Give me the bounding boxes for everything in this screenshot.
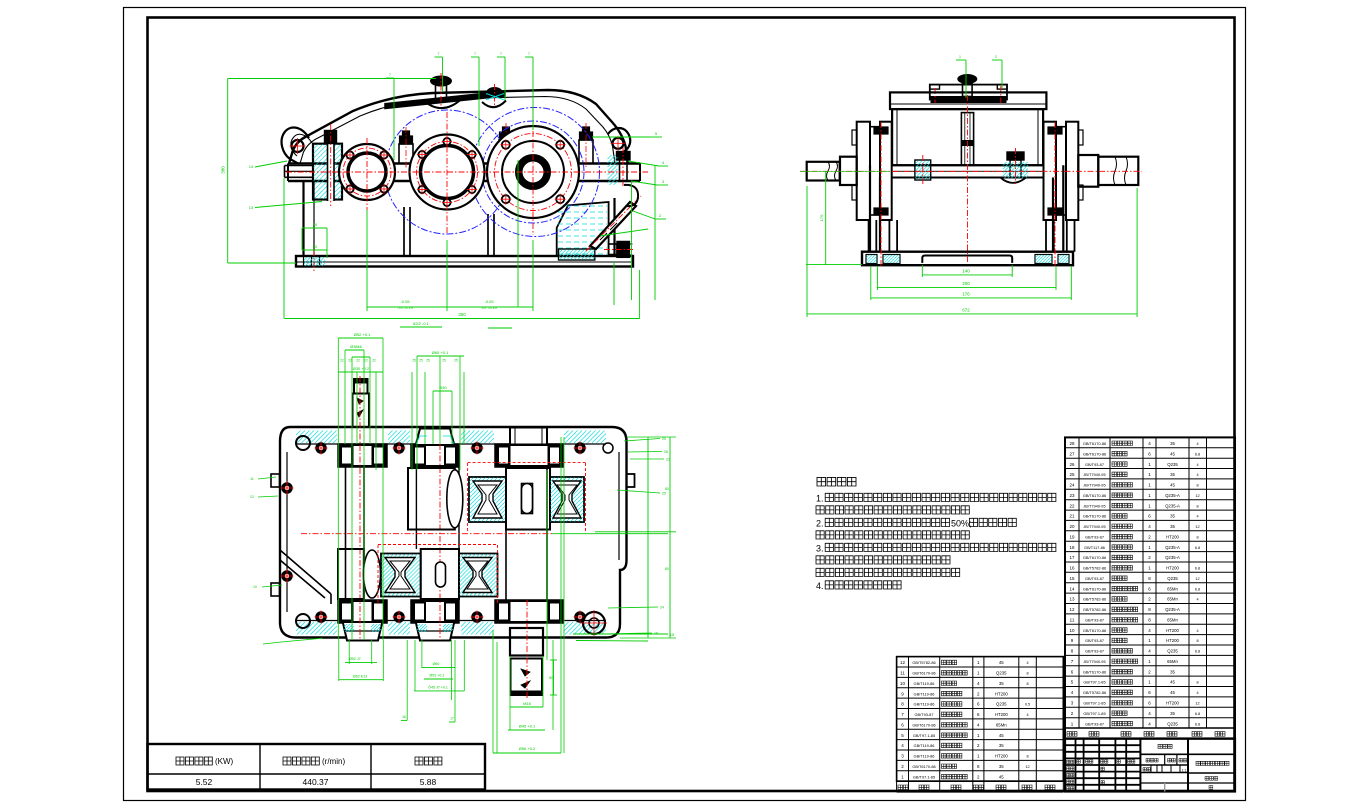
svg-text:HT200: HT200 (995, 754, 1009, 759)
svg-text:45: 45 (1170, 451, 1175, 456)
svg-text:65Mn: 65Mn (1167, 659, 1178, 664)
svg-text:GB/T6170-86: GB/T6170-86 (1083, 493, 1106, 498)
svg-text:HT200: HT200 (1166, 534, 1180, 539)
svg-text:Ø45 +0.1: Ø45 +0.1 (519, 724, 536, 729)
svg-text:4: 4 (1196, 691, 1198, 695)
svg-text:Ø52 +0.1: Ø52 +0.1 (430, 674, 445, 678)
svg-text:Ø30 +0.2: Ø30 +0.2 (353, 366, 370, 371)
svg-text:22: 22 (356, 359, 360, 363)
svg-text:10: 10 (1069, 628, 1075, 633)
svg-text:8: 8 (1196, 504, 1198, 508)
svg-text:25: 25 (442, 359, 446, 363)
svg-text:GB/T6170-86: GB/T6170-86 (1083, 628, 1106, 633)
svg-text:Ø52 J7: Ø52 J7 (349, 657, 361, 661)
svg-text:JB/T7940-95: JB/T7940-95 (1083, 472, 1105, 477)
svg-text:GB/T5782-86: GB/T5782-86 (912, 660, 935, 665)
svg-text:HT200: HT200 (1166, 628, 1180, 633)
svg-text:17: 17 (1069, 555, 1075, 560)
svg-text:11: 11 (250, 477, 254, 481)
svg-text:80: 80 (665, 487, 669, 491)
svg-text:11: 11 (1070, 617, 1075, 622)
svg-text:1:1: 1:1 (1182, 768, 1187, 772)
svg-text:8: 8 (1196, 535, 1198, 539)
svg-text:Ø40: Ø40 (439, 385, 447, 390)
svg-text:5.88: 5.88 (420, 777, 437, 787)
svg-text:Q235: Q235 (1167, 462, 1178, 467)
svg-text:22: 22 (340, 359, 344, 363)
svg-text:20: 20 (662, 437, 666, 441)
svg-text:12: 12 (1069, 607, 1075, 612)
svg-text:4: 4 (1196, 515, 1198, 519)
svg-text:23: 23 (1069, 493, 1075, 498)
svg-text:HT200: HT200 (995, 691, 1009, 696)
svg-text:7: 7 (389, 73, 391, 77)
svg-text:JB/T7940-95: JB/T7940-95 (1083, 483, 1105, 488)
svg-text:25: 25 (662, 492, 666, 496)
svg-text:12: 12 (1195, 577, 1199, 581)
svg-text:JB/T7940-95: JB/T7940-95 (1083, 524, 1105, 529)
svg-text:GB/T117-86: GB/T117-86 (1084, 545, 1105, 550)
svg-text:65Mn: 65Mn (1167, 586, 1178, 591)
svg-text:Q235: Q235 (996, 671, 1007, 676)
svg-text:26: 26 (1069, 462, 1075, 467)
svg-text:GB/T93-87: GB/T93-87 (1085, 721, 1104, 726)
svg-text:-0.05: -0.05 (400, 299, 410, 304)
svg-text:12: 12 (250, 495, 254, 499)
svg-text:GB/T97.1-85: GB/T97.1-85 (1083, 711, 1105, 716)
svg-text:JB/T7940-95: JB/T7940-95 (1083, 659, 1105, 664)
svg-text:6.8: 6.8 (1195, 452, 1200, 456)
svg-text:GB/T119-86: GB/T119-86 (914, 702, 935, 707)
svg-text:7: 7 (474, 52, 476, 56)
svg-text:-70 -0.10: -70 -0.10 (397, 305, 414, 310)
svg-text:GB/T5782-86: GB/T5782-86 (1083, 597, 1106, 602)
svg-text:GB/T93-87: GB/T93-87 (1085, 617, 1104, 622)
svg-text:GB/T6170-86: GB/T6170-86 (1083, 669, 1106, 674)
svg-text:45: 45 (1170, 680, 1175, 685)
svg-text:GB/T93-87: GB/T93-87 (1085, 534, 1104, 539)
svg-text:Ø60: Ø60 (433, 662, 440, 666)
svg-text:25: 25 (412, 359, 416, 363)
svg-text:35: 35 (999, 764, 1004, 769)
svg-text:25: 25 (1069, 472, 1075, 477)
svg-text:6.8: 6.8 (1195, 650, 1200, 654)
svg-text:GB/T119-86: GB/T119-86 (914, 691, 935, 696)
svg-text:7: 7 (528, 52, 530, 56)
svg-text:13: 13 (1069, 597, 1075, 602)
svg-text:6.8: 6.8 (1195, 722, 1200, 726)
svg-text:Q235: Q235 (1167, 721, 1178, 726)
svg-text:45: 45 (1170, 690, 1175, 695)
svg-text:25: 25 (419, 359, 423, 363)
svg-text:25: 25 (426, 359, 430, 363)
svg-text:4: 4 (1196, 629, 1198, 633)
svg-text:20: 20 (1069, 524, 1075, 529)
svg-text:672: 672 (962, 308, 970, 313)
svg-text:35: 35 (999, 743, 1004, 748)
svg-text:3.: 3. (816, 544, 824, 554)
svg-text:7: 7 (438, 52, 440, 56)
svg-text:Q235-A: Q235-A (1165, 503, 1180, 508)
svg-text:200: 200 (962, 281, 970, 286)
svg-text:50%;: 50%; (951, 519, 972, 529)
svg-text:GB/T5782-86: GB/T5782-86 (1083, 566, 1106, 571)
svg-text:GB/T5782-86: GB/T5782-86 (1083, 607, 1106, 612)
svg-text:Ø56 +0.2: Ø56 +0.2 (519, 746, 536, 751)
svg-text:GB/T93-87: GB/T93-87 (1085, 462, 1104, 467)
svg-text:GB/T6170-86: GB/T6170-86 (1083, 451, 1106, 456)
svg-text:30: 30 (313, 222, 318, 227)
svg-text:35: 35 (1170, 441, 1175, 446)
svg-text:27: 27 (1069, 451, 1075, 456)
svg-text:-67 -0.10: -67 -0.10 (481, 305, 498, 310)
svg-text:JB/T7940-95: JB/T7940-95 (1083, 503, 1105, 508)
svg-text:45: 45 (999, 660, 1004, 665)
svg-text:6.8: 6.8 (1195, 587, 1200, 591)
svg-text:GB/T97.1-85: GB/T97.1-85 (1083, 701, 1105, 706)
svg-text:12: 12 (1195, 702, 1199, 706)
svg-text:24: 24 (660, 606, 664, 610)
svg-text:Q235: Q235 (1167, 649, 1178, 654)
svg-text:GB/T6170-86: GB/T6170-86 (1083, 441, 1106, 446)
svg-text:5.52: 5.52 (196, 777, 213, 787)
svg-text:(KW): (KW) (215, 757, 234, 766)
svg-text:8: 8 (1196, 681, 1198, 685)
svg-text:13: 13 (249, 205, 254, 210)
svg-text:45: 45 (999, 733, 1004, 738)
svg-text:6.8: 6.8 (1195, 567, 1200, 571)
svg-text:10: 10 (253, 585, 257, 589)
svg-text:4: 4 (1196, 598, 1198, 602)
svg-text:Ø62 K13: Ø62 K13 (353, 674, 367, 678)
svg-text:HT200: HT200 (1166, 638, 1180, 643)
svg-text:GB/T97.1-85: GB/T97.1-85 (913, 774, 935, 779)
svg-text:HT200: HT200 (995, 712, 1009, 717)
svg-text:GB/T97.1-85: GB/T97.1-85 (1083, 680, 1105, 685)
svg-text:140: 140 (962, 269, 970, 274)
svg-text:35: 35 (1170, 472, 1175, 477)
svg-text:7: 7 (500, 52, 502, 56)
svg-text:22: 22 (1069, 503, 1075, 508)
svg-text:45: 45 (1170, 483, 1175, 488)
svg-text:20: 20 (313, 244, 318, 249)
svg-text:2: 2 (995, 55, 997, 59)
svg-text:4: 4 (1196, 473, 1198, 477)
svg-text:15: 15 (1069, 576, 1075, 581)
svg-text:GB/T93-87: GB/T93-87 (1085, 649, 1104, 654)
svg-text:22: 22 (348, 359, 352, 363)
svg-text:Ø38k6: Ø38k6 (350, 344, 363, 349)
svg-text:GB/T119-86: GB/T119-86 (914, 754, 935, 759)
svg-text:8: 8 (1026, 682, 1028, 686)
svg-text:19: 19 (1069, 534, 1075, 539)
svg-text:8: 8 (1026, 755, 1028, 759)
svg-text:16: 16 (402, 715, 406, 719)
svg-text:GB/T6170-86: GB/T6170-86 (912, 671, 935, 676)
svg-text:GB/T93-87: GB/T93-87 (1085, 638, 1104, 643)
svg-text:8: 8 (1026, 672, 1028, 676)
svg-text:Ø60 +0.1: Ø60 +0.1 (432, 350, 449, 355)
svg-text:16: 16 (1069, 566, 1075, 571)
svg-text:35: 35 (1170, 669, 1175, 674)
svg-text:Q235: Q235 (1167, 576, 1178, 581)
svg-text:15: 15 (670, 632, 675, 637)
svg-text:GB/T93-87: GB/T93-87 (914, 712, 933, 717)
svg-text:-0.05: -0.05 (484, 299, 494, 304)
svg-text:65Mn: 65Mn (996, 722, 1007, 727)
svg-text:35: 35 (1170, 711, 1175, 716)
svg-text:35: 35 (1170, 524, 1175, 529)
svg-text:GB/T6170-86: GB/T6170-86 (1083, 555, 1106, 560)
svg-text:Q235-A: Q235-A (1165, 493, 1180, 498)
svg-text:10: 10 (900, 681, 906, 686)
svg-text:GB/T5782-86: GB/T5782-86 (1083, 690, 1106, 695)
svg-text:28: 28 (1069, 441, 1075, 446)
svg-text:12: 12 (1195, 525, 1199, 529)
svg-text:Q235-A: Q235-A (1165, 545, 1180, 550)
svg-text:GB/T6170-86: GB/T6170-86 (1083, 586, 1106, 591)
svg-text:17: 17 (450, 717, 454, 721)
svg-text:6.8: 6.8 (1195, 712, 1200, 716)
svg-text:GB/T6170-86: GB/T6170-86 (1083, 514, 1106, 519)
svg-text:12: 12 (1195, 494, 1199, 498)
svg-text:11: 11 (900, 671, 905, 676)
svg-text:350: 350 (458, 312, 466, 317)
svg-text:21: 21 (1069, 514, 1075, 519)
svg-text:35: 35 (1170, 514, 1175, 519)
svg-text:1.: 1. (816, 494, 824, 504)
svg-text:GB/T6170-86: GB/T6170-86 (912, 722, 935, 727)
svg-text:22: 22 (372, 359, 376, 363)
svg-text:25: 25 (454, 359, 458, 363)
svg-text:14: 14 (1069, 586, 1075, 591)
svg-text:Q235-A: Q235-A (1165, 607, 1180, 612)
svg-text:14: 14 (249, 164, 254, 169)
svg-text:26: 26 (664, 450, 668, 454)
svg-text:62/2 -0.1: 62/2 -0.1 (413, 321, 430, 326)
svg-text:18: 18 (1069, 545, 1075, 550)
svg-text:4.: 4. (816, 581, 824, 591)
svg-text:440.37: 440.37 (303, 777, 329, 787)
svg-text:GB/T6170-86: GB/T6170-86 (912, 764, 935, 769)
svg-text:8: 8 (1196, 639, 1198, 643)
svg-text:22: 22 (666, 458, 670, 462)
svg-text:Q235: Q235 (996, 702, 1007, 707)
svg-text:170: 170 (819, 214, 824, 221)
svg-text:65Mn: 65Mn (1167, 597, 1178, 602)
svg-text:45: 45 (999, 774, 1004, 779)
svg-text:22: 22 (364, 359, 368, 363)
svg-text:Ô45 J7 +0.1: Ô45 J7 +0.1 (428, 685, 448, 690)
svg-text:(r/min): (r/min) (322, 757, 345, 766)
svg-text:Q235-A: Q235-A (1165, 555, 1180, 560)
svg-text:176: 176 (962, 292, 970, 297)
svg-text:4: 4 (1196, 442, 1198, 446)
svg-text:HT200: HT200 (1166, 701, 1180, 706)
svg-text:4: 4 (1196, 463, 1198, 467)
svg-text:380: 380 (221, 166, 226, 174)
svg-text:GB/T119-86: GB/T119-86 (914, 681, 935, 686)
svg-text:4: 4 (1026, 661, 1028, 665)
svg-text:0.5: 0.5 (1025, 703, 1030, 707)
svg-text:80: 80 (665, 567, 669, 571)
svg-text:1: 1 (959, 55, 961, 59)
svg-text:18: 18 (654, 632, 658, 636)
svg-text:Ø52 +0.1: Ø52 +0.1 (354, 332, 371, 337)
svg-text:GB/T97.1-85: GB/T97.1-85 (913, 733, 935, 738)
svg-text:65Mn: 65Mn (1167, 617, 1178, 622)
svg-text:8: 8 (1196, 484, 1198, 488)
svg-text:80: 80 (549, 676, 553, 680)
svg-text:GB/T119-86: GB/T119-86 (914, 743, 935, 748)
svg-text:35: 35 (999, 681, 1004, 686)
svg-text:HT200: HT200 (1166, 566, 1180, 571)
svg-text:6.8: 6.8 (1195, 546, 1200, 550)
svg-text:GB/T93-87: GB/T93-87 (1085, 576, 1104, 581)
svg-text:12: 12 (900, 660, 906, 665)
svg-text:24: 24 (1069, 483, 1075, 488)
svg-text:12: 12 (1025, 765, 1029, 769)
svg-text:2.: 2. (816, 519, 824, 529)
svg-text:M16: M16 (523, 701, 532, 706)
svg-text:4: 4 (1026, 713, 1028, 717)
